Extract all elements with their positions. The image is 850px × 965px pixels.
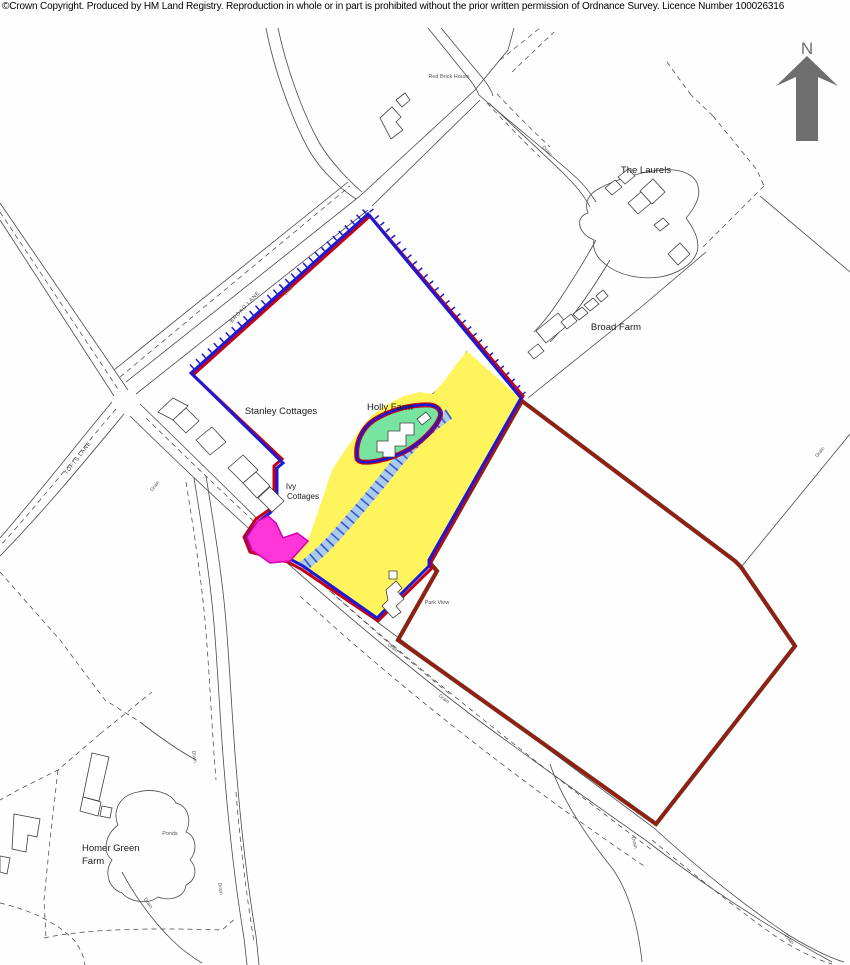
road-line	[0, 220, 114, 396]
label-holly-farm: Holly Farm	[367, 402, 413, 413]
label-drain: Drain	[437, 693, 450, 705]
building-outline	[654, 218, 669, 231]
label-drain: Drain	[630, 836, 639, 849]
north-arrow: N	[776, 39, 838, 141]
dashed-line	[512, 32, 554, 72]
parcel-boundaries-layer	[188, 210, 795, 824]
label-drain: Drain	[142, 897, 154, 910]
dashed-line	[0, 903, 85, 965]
label-ivy-cottages: Ivy	[286, 482, 296, 491]
copyright-notice: ©Crown Copyright. Produced by HM Land Re…	[2, 1, 784, 13]
building-outline	[596, 290, 608, 302]
dashed-line	[236, 792, 254, 942]
blue-edge-ticks	[371, 210, 524, 394]
road-line-tofts-lane	[0, 414, 124, 556]
map-canvas: Red Brick House The Laurels Broad Farm S…	[0, 0, 850, 965]
blue-edge-ticks	[188, 211, 365, 370]
label-drain: Drain	[149, 480, 161, 493]
building-stanley-cottages	[196, 427, 226, 455]
road-line	[489, 103, 590, 207]
dashed-line	[44, 770, 58, 938]
track-line	[140, 722, 196, 760]
title-plan-page: ©Crown Copyright. Produced by HM Land Re…	[0, 0, 850, 965]
label-drain: Drain	[783, 933, 795, 946]
dashed-line	[691, 95, 713, 116]
dashed-line	[0, 572, 140, 722]
label-park-view: Park View	[425, 600, 450, 606]
drain-line	[742, 434, 850, 566]
road-line-tofts-lane	[0, 402, 112, 538]
building-outline	[584, 298, 599, 311]
field-boundary-line	[760, 196, 850, 272]
label-tofts-lane: TOFTS LANE	[64, 441, 93, 476]
label-drain: Drain	[190, 750, 198, 763]
building-outline	[12, 814, 40, 852]
dashed-line	[0, 409, 116, 546]
building-outline	[0, 856, 10, 874]
yellow-tinted-area	[290, 351, 521, 617]
building-outline	[100, 806, 112, 818]
label-homer-green-farm: Homer Green	[82, 843, 140, 854]
dashed-line	[701, 186, 764, 249]
track-line	[534, 240, 596, 332]
dashed-line	[713, 116, 764, 186]
label-drain: Drain	[216, 882, 224, 895]
label-homer-green-farm: Farm	[82, 856, 104, 867]
label-red-brick-house: Red Brick House	[428, 74, 469, 80]
dashed-line	[44, 918, 236, 938]
label-ivy-cottages: Cottages	[287, 492, 319, 501]
building-outline	[573, 307, 588, 320]
building-outline	[605, 180, 622, 195]
building-homer-green-farm	[83, 753, 109, 801]
road-line	[428, 28, 479, 95]
north-arrow-label: N	[801, 39, 813, 58]
label-broad-farm: Broad Farm	[591, 322, 641, 333]
drain-line	[122, 872, 202, 963]
dashed-line	[300, 596, 644, 866]
north-arrow-icon	[776, 56, 838, 141]
dashed-line	[500, 28, 540, 60]
road-line	[441, 28, 493, 96]
dashed-line	[0, 212, 120, 392]
label-stanley-cottages: Stanley Cottages	[245, 406, 318, 417]
building-outline	[389, 571, 397, 579]
building-outline	[528, 344, 544, 359]
label-the-laurels: The Laurels	[621, 165, 671, 176]
drain-line	[550, 764, 642, 962]
label-drain: Drain	[814, 446, 826, 459]
building-outline	[668, 243, 690, 265]
label-ponds: Ponds	[162, 831, 178, 837]
tinted-areas-layer	[290, 351, 521, 617]
building-red-brick-house	[380, 107, 403, 139]
dashed-line	[497, 94, 550, 147]
building-outline	[396, 93, 410, 107]
road-line	[0, 203, 128, 390]
dashed-line	[120, 186, 350, 377]
building-broad-farm	[536, 313, 568, 343]
dashed-line	[186, 482, 216, 780]
dashed-line	[667, 62, 691, 95]
